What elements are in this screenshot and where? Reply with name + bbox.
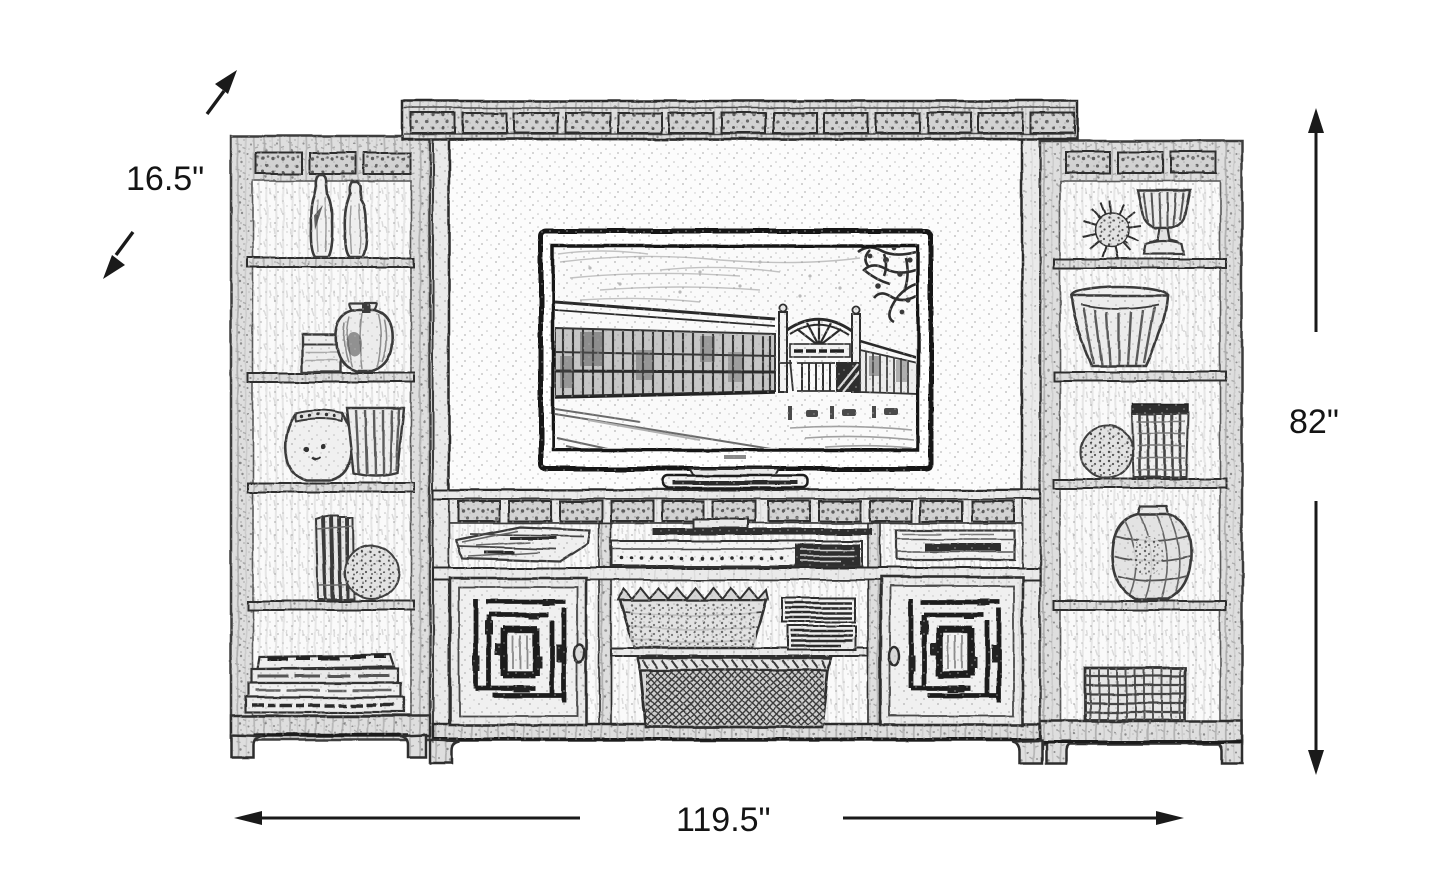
svg-text:16.5": 16.5" — [126, 160, 204, 198]
svg-text:82": 82" — [1289, 403, 1339, 441]
svg-text:119.5": 119.5" — [676, 801, 771, 839]
